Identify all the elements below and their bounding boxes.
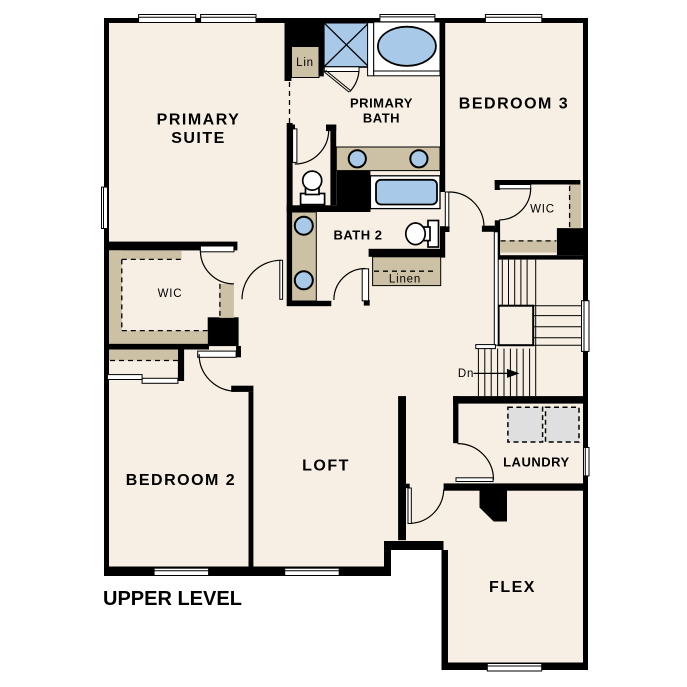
svg-text:Linen: Linen bbox=[389, 273, 421, 285]
svg-text:PRIMARY: PRIMARY bbox=[157, 112, 241, 129]
svg-text:WIC: WIC bbox=[158, 288, 183, 300]
svg-text:Dn: Dn bbox=[458, 368, 474, 380]
svg-text:Lin: Lin bbox=[296, 57, 314, 69]
svg-text:BEDROOM 2: BEDROOM 2 bbox=[126, 472, 236, 489]
svg-text:SUITE: SUITE bbox=[171, 130, 226, 147]
svg-text:BATH 2: BATH 2 bbox=[334, 228, 383, 243]
svg-text:WIC: WIC bbox=[530, 204, 555, 216]
svg-text:BATH: BATH bbox=[363, 111, 400, 126]
svg-text:LAUNDRY: LAUNDRY bbox=[503, 455, 570, 470]
svg-text:BEDROOM 3: BEDROOM 3 bbox=[459, 96, 569, 113]
svg-text:UPPER LEVEL: UPPER LEVEL bbox=[103, 588, 242, 610]
svg-text:PRIMARY: PRIMARY bbox=[350, 96, 413, 111]
svg-text:FLEX: FLEX bbox=[489, 579, 536, 596]
svg-text:LOFT: LOFT bbox=[302, 458, 350, 475]
